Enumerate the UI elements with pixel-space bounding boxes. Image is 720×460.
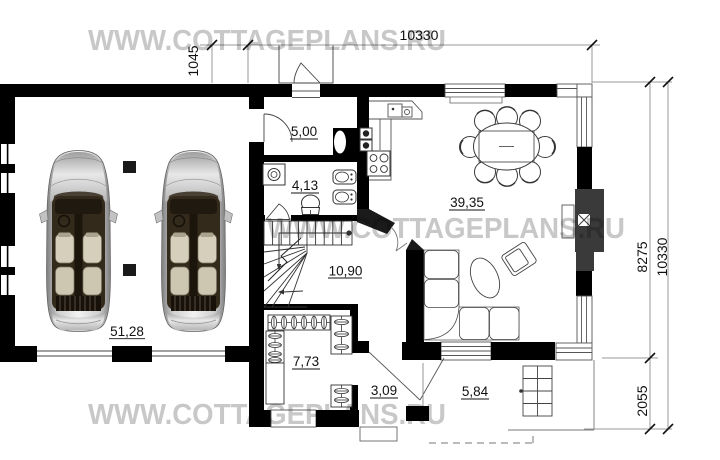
svg-text:39,35: 39,35 <box>450 195 484 210</box>
svg-text:10330: 10330 <box>654 237 670 276</box>
svg-text:10,90: 10,90 <box>329 264 363 279</box>
svg-text:4,13: 4,13 <box>292 178 318 193</box>
svg-text:51,28: 51,28 <box>110 324 144 339</box>
svg-text:3,09: 3,09 <box>371 383 397 398</box>
svg-text:5,00: 5,00 <box>291 124 317 139</box>
svg-text:7,73: 7,73 <box>293 354 319 369</box>
svg-text:2055: 2055 <box>634 385 650 416</box>
svg-text:8275: 8275 <box>634 241 650 272</box>
svg-text:5,84: 5,84 <box>462 384 489 399</box>
